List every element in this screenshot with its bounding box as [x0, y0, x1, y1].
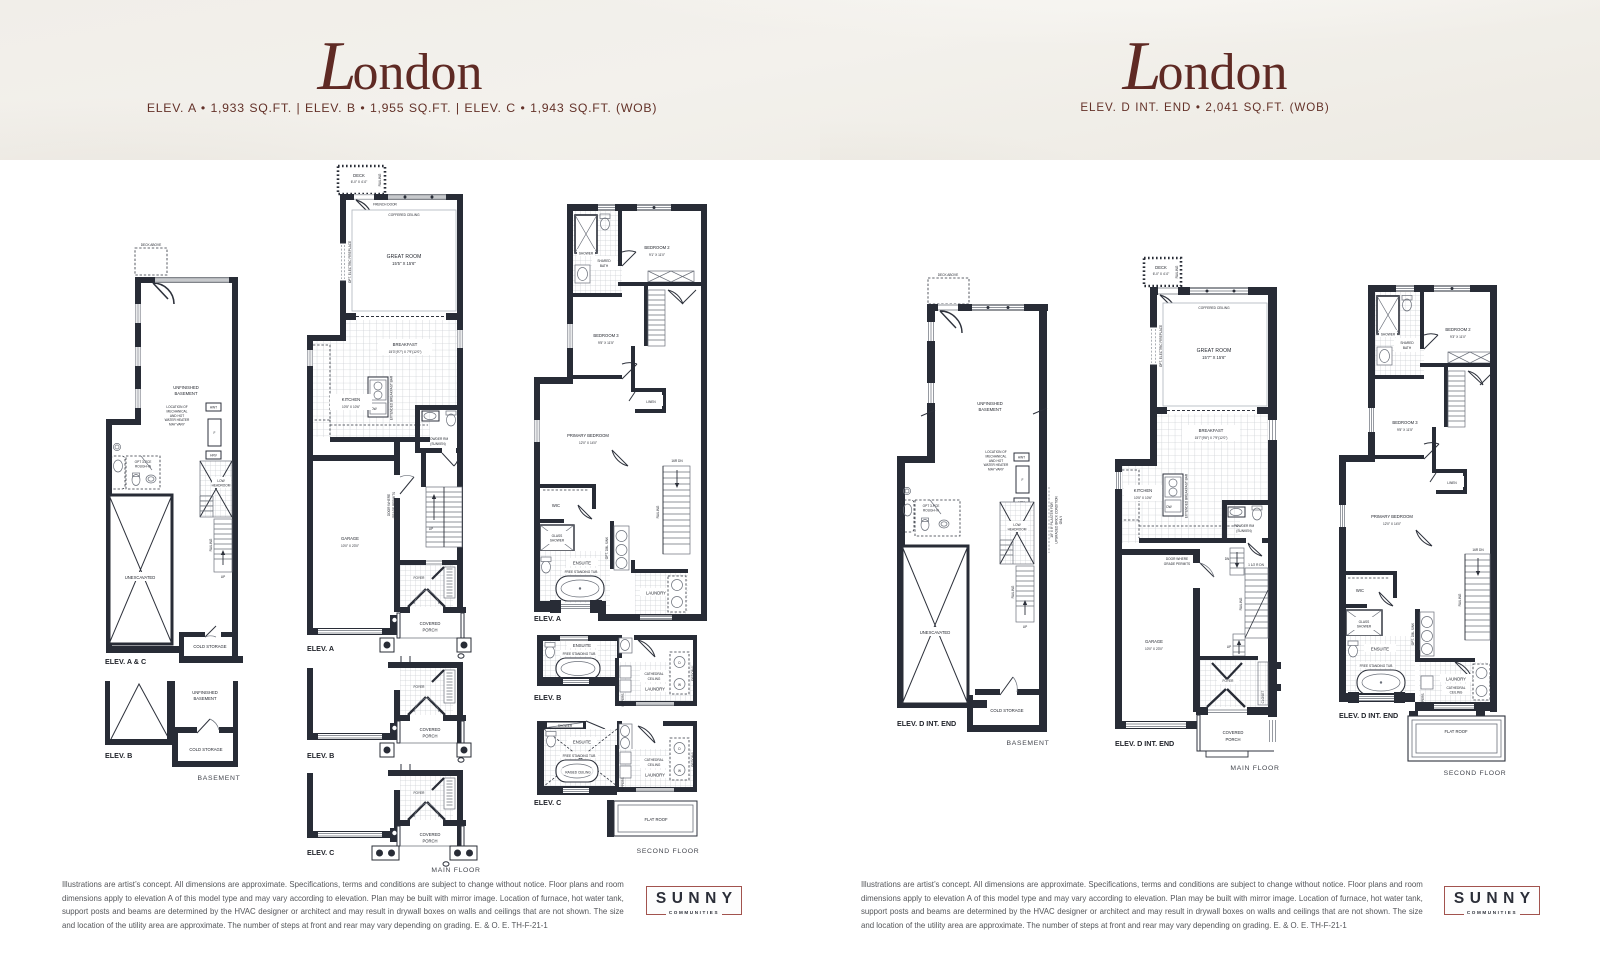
svg-text:GLASS: GLASS [552, 534, 563, 538]
svg-text:KITCHEN: KITCHEN [1134, 488, 1152, 493]
svg-text:ENSUITE: ENSUITE [1371, 647, 1389, 652]
svg-text:ELEV. D INT. END: ELEV. D INT. END [1339, 711, 1398, 720]
svg-text:BATH: BATH [600, 264, 609, 268]
svg-text:MAIN FLOOR: MAIN FLOOR [431, 867, 480, 874]
svg-text:PORCH: PORCH [422, 734, 437, 739]
svg-text:GREAT ROOM: GREAT ROOM [1197, 348, 1232, 354]
svg-text:GREAT ROOM: GREAT ROOM [387, 254, 422, 260]
svg-text:LAUNDRY: LAUNDRY [646, 591, 666, 596]
svg-text:SECOND FLOOR: SECOND FLOOR [637, 848, 700, 855]
svg-text:16R DN: 16R DN [1472, 548, 1484, 552]
svg-text:LINEN: LINEN [1447, 481, 1457, 485]
svg-text:CEILING: CEILING [648, 763, 661, 767]
svg-text:RAILING: RAILING [378, 173, 382, 186]
svg-text:PRIMARY BEDROOM: PRIMARY BEDROOM [1371, 514, 1413, 519]
svg-text:SHARED: SHARED [1400, 341, 1414, 345]
svg-text:COFFERED CEILING: COFFERED CEILING [1198, 306, 1230, 310]
svg-text:ENSUITE: ENSUITE [573, 643, 591, 648]
svg-text:9'3" X 11'0": 9'3" X 11'0" [1450, 335, 1466, 339]
svg-text:RAILING: RAILING [1011, 585, 1015, 598]
svg-text:LAUNDRY: LAUNDRY [1446, 677, 1466, 682]
svg-text:OPTIONAL: OPTIONAL [691, 751, 695, 767]
svg-text:SHARED: SHARED [597, 259, 611, 263]
svg-text:HWT: HWT [1018, 456, 1025, 460]
svg-text:DECK: DECK [353, 173, 365, 178]
svg-text:POWDER RM: POWDER RM [428, 437, 449, 441]
svg-text:16R DN: 16R DN [671, 459, 683, 463]
svg-text:DN: DN [1225, 557, 1230, 561]
svg-text:BREAKFAST: BREAKFAST [1199, 428, 1224, 433]
svg-text:LOW: LOW [217, 479, 224, 483]
svg-text:15'7" X 15'6": 15'7" X 15'6" [1202, 355, 1226, 360]
svg-text:PORCH: PORCH [1225, 737, 1240, 742]
svg-text:15'5" X 15'6": 15'5" X 15'6" [392, 261, 416, 266]
svg-text:OPTIONAL: OPTIONAL [691, 665, 695, 681]
svg-text:HEADROOM: HEADROOM [212, 484, 231, 488]
svg-text:DECK ABOVE: DECK ABOVE [938, 273, 959, 277]
svg-text:DOOR WHERE: DOOR WHERE [387, 494, 391, 516]
svg-text:COLD STORAGE: COLD STORAGE [990, 708, 1023, 713]
svg-text:UPPERS: UPPERS [621, 693, 625, 706]
svg-text:EXTENDED BREAKFAST BAR: EXTENDED BREAKFAST BAR [390, 375, 394, 420]
svg-text:18" X 8" PILASTER FOR: 18" X 8" PILASTER FOR [1050, 502, 1054, 538]
svg-text:BREAKFAST: BREAKFAST [393, 342, 418, 347]
svg-text:15'7"(9'8") X 7'9"(12'0"): 15'7"(9'8") X 7'9"(12'0") [1195, 436, 1228, 440]
svg-text:FRENCH DOOR: FRENCH DOOR [373, 203, 397, 207]
svg-text:BASEMENT: BASEMENT [174, 391, 197, 396]
svg-text:LAUNDRY: LAUNDRY [645, 773, 665, 778]
svg-text:ELEV. B: ELEV. B [534, 693, 561, 702]
svg-text:(SUNKEN): (SUNKEN) [1236, 529, 1251, 533]
svg-text:RAILING: RAILING [1239, 597, 1243, 610]
svg-text:GLASS: GLASS [1359, 620, 1370, 624]
svg-text:ELEV. A: ELEV. A [307, 644, 334, 653]
svg-text:ELEV. D INT. END: ELEV. D INT. END [1115, 739, 1174, 748]
svg-text:ELEV. A & C: ELEV. A & C [105, 657, 146, 666]
svg-text:DECK ABOVE: DECK ABOVE [141, 243, 162, 247]
svg-text:COFFERED CEILING: COFFERED CEILING [388, 213, 420, 217]
svg-text:BASEMENT: BASEMENT [193, 696, 216, 701]
svg-text:(SUNKEN): (SUNKEN) [430, 442, 445, 446]
svg-text:ELEV. B: ELEV. B [307, 751, 334, 760]
svg-text:HWT: HWT [210, 406, 217, 410]
svg-text:BEDROOM 3: BEDROOM 3 [593, 333, 619, 338]
svg-text:10'5" X 10'6": 10'5" X 10'6" [1134, 496, 1152, 500]
svg-text:OPT. DBL SINK: OPT. DBL SINK [1411, 622, 1415, 645]
svg-text:CATHEDRAL: CATHEDRAL [644, 672, 663, 676]
svg-text:BASEMENT: BASEMENT [1007, 740, 1050, 747]
svg-text:CATHEDRAL: CATHEDRAL [644, 758, 663, 762]
svg-text:FREE STANDING TUB: FREE STANDING TUB [563, 754, 596, 758]
svg-text:FLAT ROOF: FLAT ROOF [644, 817, 668, 822]
svg-text:RAILING: RAILING [209, 538, 213, 551]
svg-text:RAILING: RAILING [1458, 593, 1462, 606]
svg-text:COLD STORAGE: COLD STORAGE [189, 747, 222, 752]
svg-text:LOW: LOW [1013, 523, 1020, 527]
svg-text:LOCATION OF: LOCATION OF [985, 450, 1006, 454]
svg-text:10'0" X 23'0": 10'0" X 23'0" [1145, 647, 1163, 651]
svg-text:SHOWER: SHOWER [1381, 333, 1396, 337]
svg-text:BEDROOM 2: BEDROOM 2 [1445, 327, 1471, 332]
svg-text:1 1/2 R DN: 1 1/2 R DN [1248, 563, 1264, 567]
svg-text:MAIN FLOOR: MAIN FLOOR [1230, 765, 1279, 772]
svg-text:OPT 3-PCE: OPT 3-PCE [923, 504, 940, 508]
svg-text:RAILING: RAILING [1175, 265, 1179, 278]
svg-text:9'5" X 11'5": 9'5" X 11'5" [598, 341, 614, 345]
svg-text:AND HOT: AND HOT [989, 459, 1003, 463]
svg-text:LOCATION OF: LOCATION OF [166, 405, 187, 409]
svg-text:LAUNDRY: LAUNDRY [645, 687, 665, 692]
svg-text:OPT 3-PCE: OPT 3-PCE [135, 460, 152, 464]
svg-text:FREE STANDING TUB: FREE STANDING TUB [563, 652, 596, 656]
svg-text:ELEV. A: ELEV. A [534, 614, 561, 623]
svg-text:UPPERS: UPPERS [621, 777, 625, 790]
svg-text:DOOR WHERE: DOOR WHERE [1166, 557, 1188, 561]
svg-text:SHOWER: SHOWER [550, 539, 565, 543]
svg-text:MAY VARY: MAY VARY [169, 423, 186, 427]
svg-text:MECHANICAL: MECHANICAL [167, 409, 188, 413]
svg-text:UP: UP [1227, 645, 1231, 649]
svg-text:6'-0" X 4'-0": 6'-0" X 4'-0" [351, 180, 368, 184]
svg-text:PORCH: PORCH [422, 628, 437, 633]
svg-text:COVERED: COVERED [420, 727, 441, 732]
svg-text:W: W [678, 683, 681, 687]
svg-text:WATER HEATER: WATER HEATER [165, 418, 190, 422]
svg-text:CATHEDRAL: CATHEDRAL [1446, 686, 1465, 690]
svg-text:BASEMENT: BASEMENT [978, 407, 1001, 412]
svg-text:UNFINISHED: UNFINISHED [977, 401, 1003, 406]
svg-text:ELEV. C: ELEV. C [534, 798, 561, 807]
svg-text:OPT. DBL SINK: OPT. DBL SINK [605, 536, 609, 559]
svg-text:9'1" X 11'0": 9'1" X 11'0" [649, 253, 665, 257]
svg-text:GARAGE: GARAGE [1145, 639, 1163, 644]
svg-text:ELEV. B: ELEV. B [105, 751, 132, 760]
svg-text:UNEXCAVATED: UNEXCAVATED [920, 630, 950, 635]
svg-text:12'0" X 14'0": 12'0" X 14'0" [1383, 522, 1401, 526]
svg-text:FOYER: FOYER [1223, 679, 1235, 683]
svg-text:RAISED CEILING: RAISED CEILING [565, 771, 591, 775]
svg-text:FOYER: FOYER [414, 576, 426, 580]
svg-text:6'-0" X 4'-0": 6'-0" X 4'-0" [1153, 272, 1170, 276]
svg-text:FOYER: FOYER [414, 791, 426, 795]
svg-text:UP: UP [1023, 625, 1027, 629]
svg-text:ENSUITE: ENSUITE [573, 740, 591, 745]
svg-text:HRV: HRV [210, 454, 218, 458]
svg-text:AND HOT: AND HOT [170, 414, 184, 418]
svg-text:UNFINISHED: UNFINISHED [192, 690, 218, 695]
svg-text:BATH: BATH [1403, 346, 1412, 350]
svg-text:ENSUITE: ENSUITE [573, 561, 591, 566]
svg-text:ONLY: ONLY [1059, 515, 1063, 524]
svg-text:SHOWER: SHOWER [1357, 625, 1372, 629]
svg-text:UPPERS: UPPERS [1489, 675, 1493, 688]
svg-text:FOYER: FOYER [414, 685, 426, 689]
svg-text:DW: DW [371, 407, 376, 411]
svg-text:RAILING: RAILING [656, 505, 660, 518]
svg-text:WATER HEATER: WATER HEATER [984, 463, 1009, 467]
svg-text:COVERED: COVERED [420, 621, 441, 626]
svg-text:UNEXCAVATED: UNEXCAVATED [125, 575, 155, 580]
svg-text:DECK: DECK [1155, 265, 1167, 270]
svg-text:FLAT ROOF: FLAT ROOF [1444, 729, 1468, 734]
svg-text:OPT. ELECTRIC FIREPLACE: OPT. ELECTRIC FIREPLACE [1159, 325, 1163, 367]
svg-text:COVERED: COVERED [420, 832, 441, 837]
svg-text:OPT. ELECTRIC FIREPLACE: OPT. ELECTRIC FIREPLACE [348, 241, 352, 283]
svg-text:WIC: WIC [552, 503, 560, 508]
svg-text:ELEV. D INT. END: ELEV. D INT. END [897, 719, 956, 728]
svg-text:UNFINISHED: UNFINISHED [173, 385, 199, 390]
svg-text:BASEMENT: BASEMENT [198, 775, 241, 782]
svg-text:KITCHEN: KITCHEN [342, 397, 360, 402]
svg-text:W: W [678, 769, 681, 773]
svg-text:SHOWER: SHOWER [579, 252, 594, 256]
svg-text:EXTENDED BREAKFAST BAR: EXTENDED BREAKFAST BAR [1185, 473, 1189, 518]
svg-text:F: F [214, 431, 216, 435]
svg-text:BEDROOM 3: BEDROOM 3 [1392, 420, 1418, 425]
svg-text:12'0" X 14'0": 12'0" X 14'0" [579, 441, 597, 445]
svg-text:CEILING: CEILING [648, 677, 661, 681]
svg-text:UP: UP [221, 575, 225, 579]
svg-text:MAY VARY: MAY VARY [988, 468, 1005, 472]
svg-text:F: F [1022, 478, 1024, 482]
svg-text:10'0" X 23'0": 10'0" X 23'0" [341, 544, 359, 548]
svg-text:9'5" X 11'5": 9'5" X 11'5" [1397, 428, 1413, 432]
svg-text:UP: UP [429, 527, 433, 531]
svg-text:ELEV. C: ELEV. C [307, 848, 334, 857]
svg-text:COVERED: COVERED [1223, 730, 1244, 735]
svg-text:CEILING: CEILING [1450, 691, 1463, 695]
svg-text:HEADROOM: HEADROOM [1008, 528, 1027, 532]
svg-text:DW: DW [1166, 505, 1171, 509]
svg-text:GARAGE: GARAGE [341, 536, 359, 541]
svg-text:PORCH: PORCH [422, 839, 437, 844]
svg-text:15'3"(9'7") X 7'9"(12'0"): 15'3"(9'7") X 7'9"(12'0") [389, 350, 422, 354]
svg-text:FREE STANDING TUB: FREE STANDING TUB [565, 570, 598, 574]
svg-text:SHOWER: SHOWER [558, 724, 573, 728]
svg-text:UPGRADED BRICK CONDITION: UPGRADED BRICK CONDITION [1055, 496, 1059, 544]
svg-text:FREE STANDING TUB: FREE STANDING TUB [1360, 664, 1393, 668]
svg-text:WIC: WIC [1356, 588, 1364, 593]
svg-text:POWDER RM: POWDER RM [1234, 524, 1255, 528]
svg-text:CLOSET: CLOSET [1261, 691, 1265, 704]
svg-text:COLD STORAGE: COLD STORAGE [193, 644, 226, 649]
svg-text:SECOND FLOOR: SECOND FLOOR [1444, 770, 1507, 777]
svg-text:MECHANICAL: MECHANICAL [986, 454, 1007, 458]
svg-text:LINEN: LINEN [646, 400, 656, 404]
svg-text:BEDROOM 2: BEDROOM 2 [644, 245, 670, 250]
svg-text:10'5" X 10'6": 10'5" X 10'6" [342, 405, 360, 409]
svg-text:PRIMARY BEDROOM: PRIMARY BEDROOM [567, 433, 609, 438]
svg-text:GRADE PERMITS: GRADE PERMITS [1164, 562, 1190, 566]
